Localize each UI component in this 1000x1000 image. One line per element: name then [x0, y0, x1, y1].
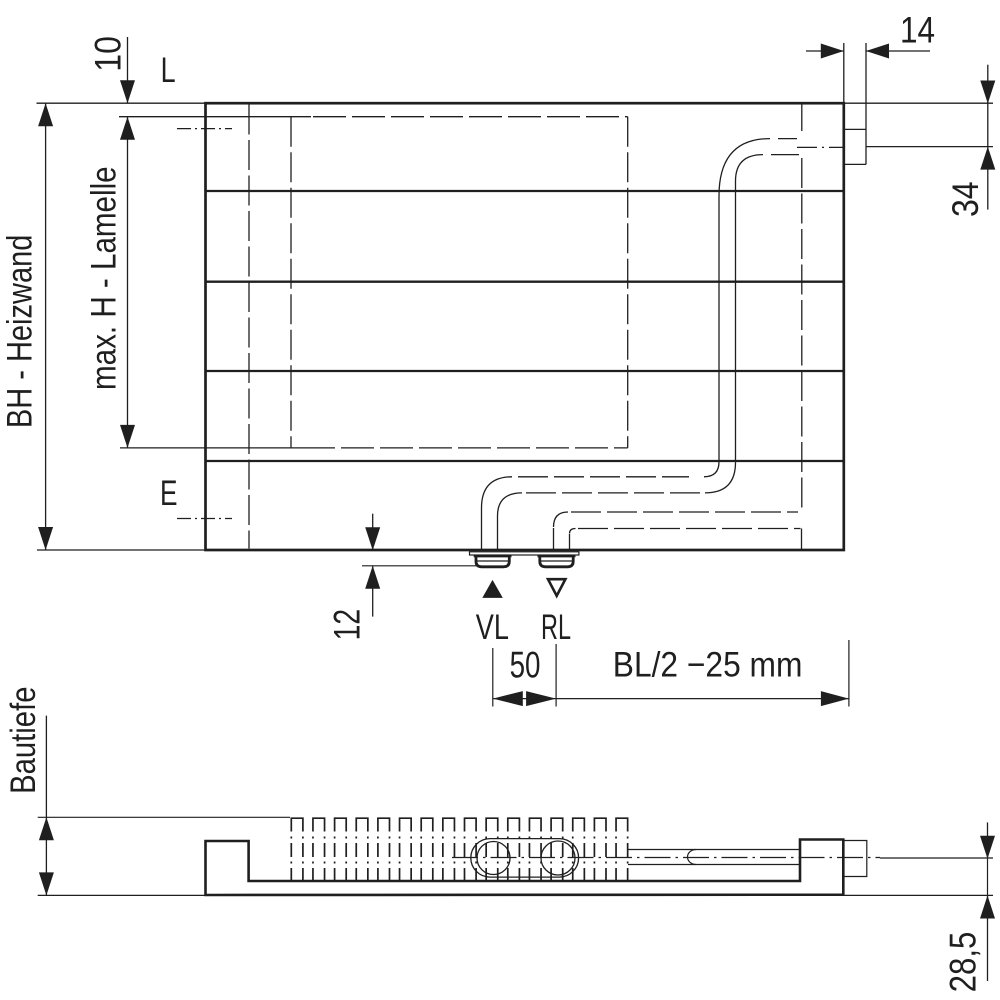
- svg-text:50: 50: [510, 644, 541, 685]
- svg-text:28,5: 28,5: [942, 932, 984, 993]
- svg-text:VL: VL: [476, 607, 509, 647]
- svg-text:34: 34: [944, 181, 986, 217]
- svg-text:Bautiefe: Bautiefe: [3, 687, 43, 794]
- svg-text:RL: RL: [541, 607, 571, 647]
- svg-text:E: E: [160, 473, 178, 513]
- svg-text:14: 14: [900, 9, 935, 51]
- svg-text:L: L: [161, 50, 176, 90]
- svg-text:BL/2 −25 mm: BL/2 −25 mm: [613, 645, 803, 685]
- svg-text:12: 12: [326, 609, 368, 641]
- svg-text:BH - Heizwand: BH - Heizwand: [0, 235, 40, 429]
- svg-text:10: 10: [86, 36, 128, 72]
- svg-text:max. H - Lamelle: max. H - Lamelle: [84, 166, 124, 390]
